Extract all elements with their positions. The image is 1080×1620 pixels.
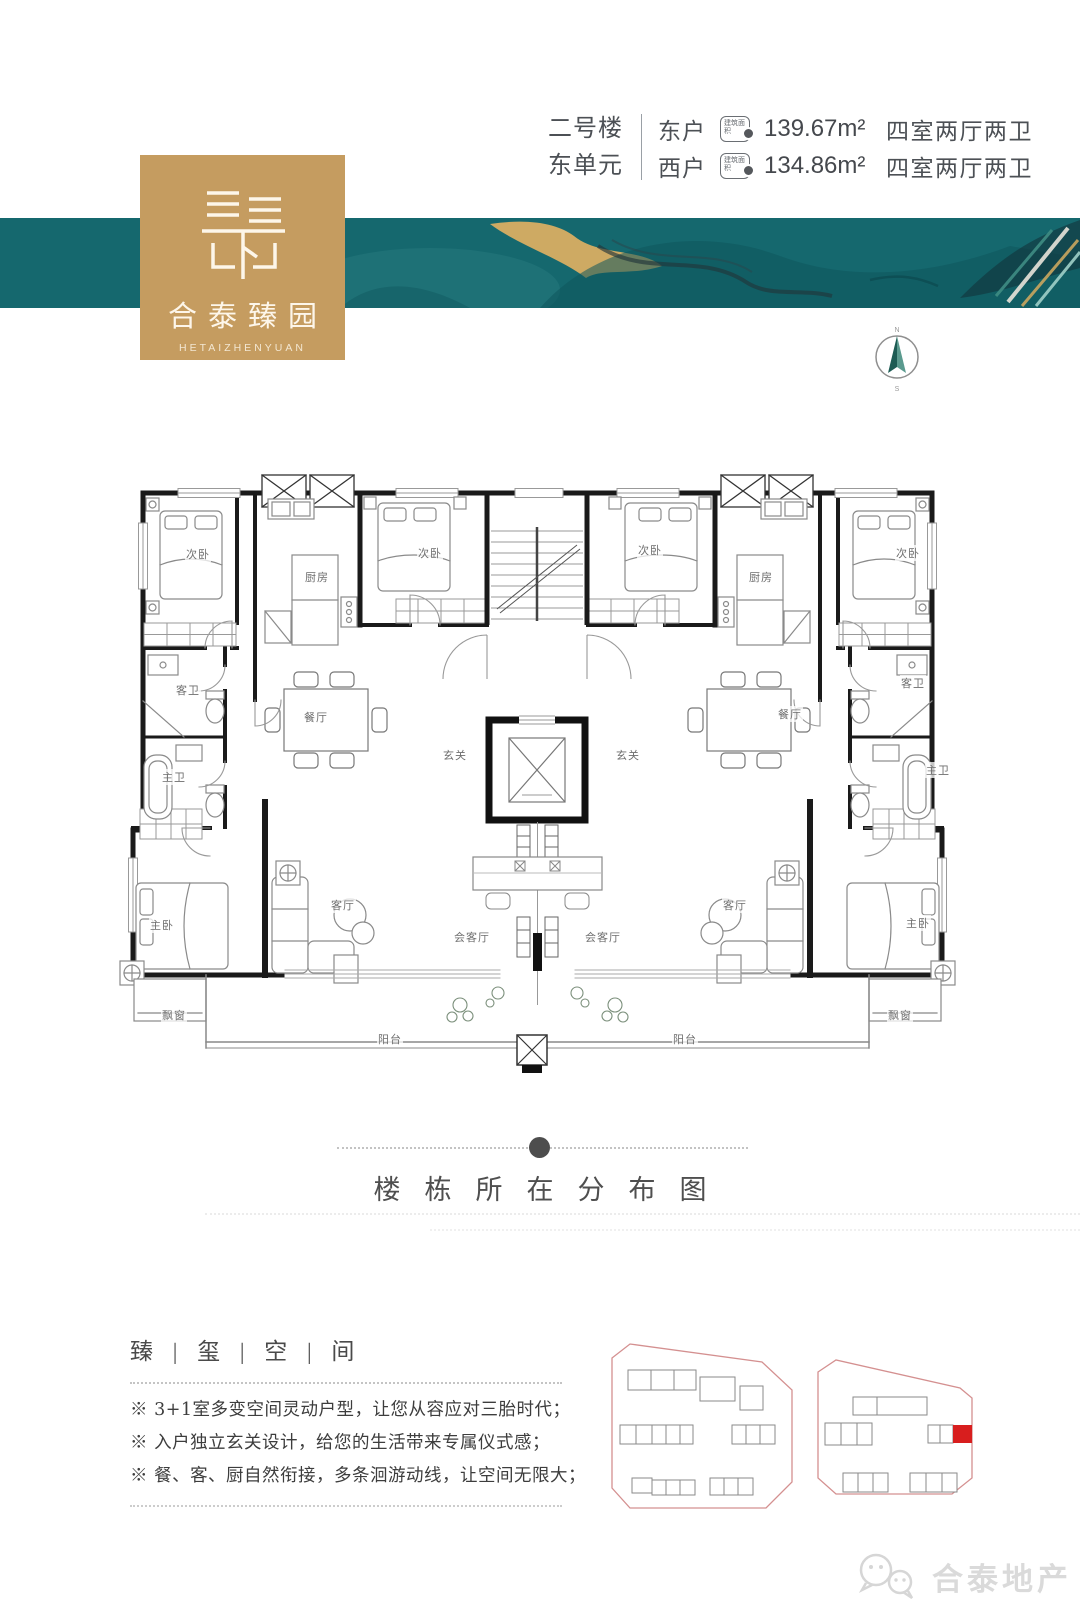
site-plan-west [612, 1344, 792, 1508]
header-divider [641, 114, 642, 180]
area-value: 139.67m² [764, 115, 886, 143]
area-badge-icon: 建筑面积 [720, 153, 750, 179]
unit-spec-header: 二号楼 东单元 东户 建筑面积 139.67m² 四室两厅两卫 西户 建筑面积 … [548, 110, 1033, 184]
faint-rule [430, 1229, 1080, 1231]
features-divider [130, 1382, 562, 1384]
building-name: 二号楼 [548, 110, 623, 147]
unit-name: 东单元 [548, 147, 623, 184]
faint-rule [205, 1213, 1080, 1215]
feature-item: ※ 餐、客、厨自然衔接，多条洄游动线，让空间无限大； [130, 1460, 562, 1493]
distribution-title: 楼栋所在分布图 [0, 1168, 1080, 1207]
wechat-icon [852, 1550, 922, 1602]
area-badge-icon: 建筑面积 [720, 116, 750, 142]
watermark-brand-text: 合泰地产 [932, 1554, 1072, 1599]
features-block: 臻 | 玺 | 空 | 间 ※ 3+1室多变空间灵动户型，让您从容应对三胎时代；… [130, 1332, 562, 1507]
floorplan-drawing [110, 465, 965, 1075]
feature-item: ※ 3+1室多变空间灵动户型，让您从容应对三胎时代； [130, 1394, 562, 1427]
household-label: 西户 [658, 149, 710, 183]
spec-row-west: 西户 建筑面积 134.86m² 四室两厅两卫 [658, 147, 1033, 184]
compass-icon: N S [867, 325, 927, 393]
svg-text:S: S [895, 386, 900, 393]
layout-value: 四室两厅两卫 [886, 149, 1033, 183]
household-label: 东户 [658, 112, 710, 146]
building-unit-label: 二号楼 东单元 [548, 110, 623, 184]
feature-item: ※ 入户独立玄关设计，给您的生活带来专属仪式感； [130, 1427, 562, 1460]
brand-logo: 合泰臻园 HETAIZHENYUAN [140, 155, 345, 360]
area-value: 134.86m² [764, 152, 886, 180]
spec-rows: 东户 建筑面积 139.67m² 四室两厅两卫 西户 建筑面积 134.86m²… [658, 110, 1033, 184]
site-plan-east [818, 1360, 972, 1494]
brand-watermark: 合泰地产 [852, 1550, 1072, 1602]
core-stairs-lift [443, 489, 631, 1074]
layout-value: 四室两厅两卫 [886, 112, 1033, 146]
features-heading: 臻 | 玺 | 空 | 间 [130, 1332, 562, 1366]
svg-text:N: N [894, 327, 899, 334]
brand-mark-icon [197, 185, 289, 285]
highlighted-building [953, 1425, 972, 1443]
spec-row-east: 东户 建筑面积 139.67m² 四室两厅两卫 [658, 110, 1033, 147]
logo-name-en: HETAIZHENYUAN [179, 342, 306, 354]
features-divider [130, 1505, 562, 1507]
logo-name-cn: 合泰臻园 [168, 293, 328, 335]
leader-dot [529, 1137, 550, 1158]
site-plans [595, 1320, 995, 1520]
